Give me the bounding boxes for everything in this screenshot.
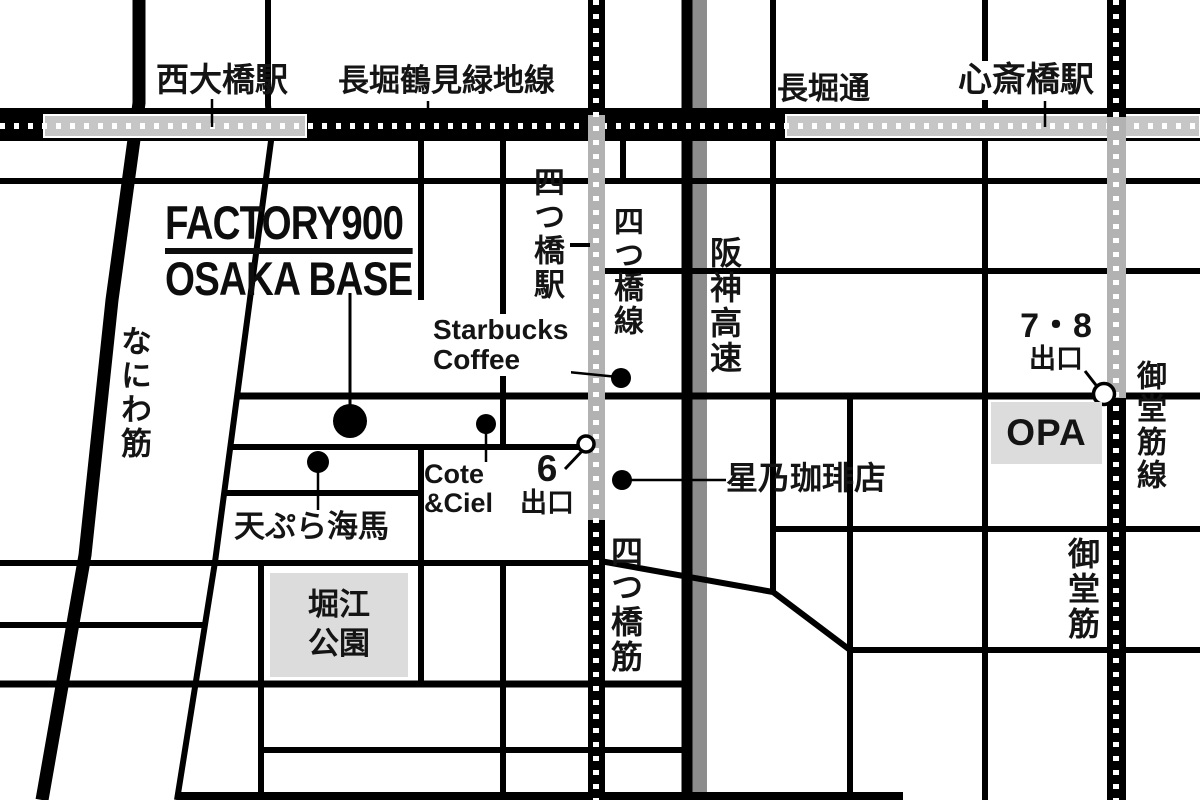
- yotsubashi-station-label: 四つ橋駅: [531, 166, 562, 302]
- yotsubashi-station-band: [588, 115, 605, 520]
- horie-park-label-line2: 公園: [308, 625, 370, 664]
- tempura-kaiba-label: 天ぷら海馬: [234, 510, 389, 543]
- starbucks-label-line1: Starbucks: [433, 315, 568, 345]
- horie-park-box: 堀江 公園: [270, 573, 408, 677]
- midosuji-road-label: 御堂筋: [1066, 537, 1098, 642]
- poi-dot-hoshino: [612, 470, 632, 490]
- cote-ciel-label: Cote &Ciel: [424, 460, 493, 518]
- shinsaibashi-station-label: 心斎橋駅: [955, 61, 1097, 100]
- poi-dot-starbucks: [611, 368, 631, 388]
- starbucks-label: Starbucks Coffee: [430, 314, 571, 376]
- horie-park-label-line1: 堀江: [308, 586, 370, 625]
- opa-box: OPA: [991, 402, 1102, 464]
- nishiohashi-station-label: 西大橋駅: [156, 62, 288, 98]
- exit-marker-6: [578, 436, 594, 452]
- map-graphics: [0, 0, 1200, 800]
- midosuji-line-label: 御堂筋線: [1133, 360, 1163, 492]
- exit-78-numbers: 7・8: [1018, 309, 1094, 345]
- exit-6-number: 6: [514, 450, 580, 489]
- access-map: 西大橋駅 長堀鶴見緑地線 長堀通 心斎橋駅 FACTORY900 OSAKA B…: [0, 0, 1200, 800]
- exit-6-label: 6 出口: [514, 450, 580, 517]
- yotsubashi-suji-label: 四つ橋筋: [609, 535, 641, 675]
- exit-78-text: 出口: [1018, 345, 1094, 373]
- poi-dot-cote-ciel: [476, 414, 496, 434]
- exit-78-label: 7・8 出口: [1018, 309, 1094, 373]
- midosuji-station-band: [1107, 117, 1126, 398]
- hanshin-expressway-label: 阪神高速: [708, 236, 740, 376]
- opa-label: OPA: [1006, 412, 1086, 454]
- cote-ciel-label-line1: Cote: [424, 460, 493, 489]
- yotsubashi-line-label: 四つ橋線: [610, 206, 640, 338]
- poi-dot-factory900: [333, 404, 367, 438]
- cote-ciel-label-line2: &Ciel: [424, 489, 493, 518]
- starbucks-label-line2: Coffee: [433, 345, 568, 375]
- nagahori-dori-label: 長堀通: [777, 72, 870, 105]
- factory900-logo-line2: OSAKA BASE: [165, 257, 412, 302]
- hoshino-coffee-label: 星乃珈琲店: [726, 461, 886, 496]
- factory900-logo: FACTORY900 OSAKA BASE: [165, 201, 412, 301]
- exit-6-text: 出口: [514, 489, 580, 517]
- factory900-logo-line1: FACTORY900: [165, 201, 412, 254]
- naniwa-suji-label: なにわ筋: [118, 325, 149, 461]
- nagahori-tsurumiryokuchi-line-label: 長堀鶴見緑地線: [338, 64, 555, 97]
- poi-dot-tempura: [307, 451, 329, 473]
